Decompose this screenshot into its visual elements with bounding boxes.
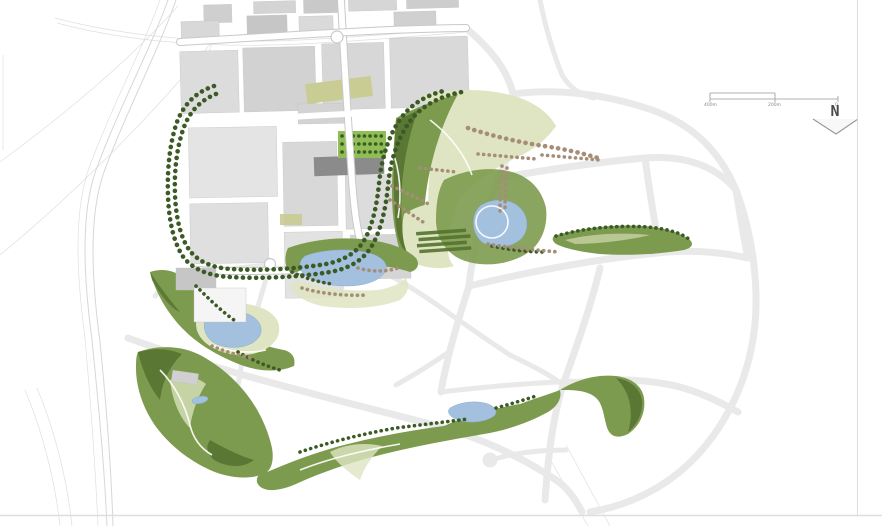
north-arrow: N — [813, 102, 858, 134]
band-pond — [448, 402, 496, 422]
white-building — [194, 288, 246, 322]
cul-de-sac-bulb — [483, 453, 498, 468]
campus-building — [188, 126, 277, 198]
east-green-strip — [553, 225, 692, 254]
masterplan-map: 400m 200m 0 N — [0, 0, 882, 526]
roundabout — [331, 31, 343, 43]
scale-label-mid: 200m — [768, 102, 781, 108]
north-chevron-icon — [813, 119, 858, 134]
highway-curve — [0, 6, 178, 162]
rail-line — [78, 0, 160, 526]
campus-building — [190, 203, 269, 264]
rail-line — [25, 390, 60, 526]
rail-line — [37, 388, 72, 526]
road-segment — [513, 92, 736, 190]
scale-bar: 400m 200m 0 — [704, 93, 838, 108]
allee-row — [500, 166, 502, 212]
street — [186, 112, 392, 124]
masterplan-sheet: 400m 200m 0 N — [0, 0, 882, 526]
olive-parcel-small — [280, 214, 302, 225]
road-segment — [441, 286, 469, 392]
road-segment — [499, 158, 736, 190]
city-block — [253, 1, 295, 14]
city-block — [303, 0, 341, 13]
city-block — [348, 0, 396, 11]
scale-label-left: 400m — [704, 102, 717, 108]
city-block — [204, 4, 232, 23]
city-block — [406, 0, 458, 9]
road-segment — [540, 0, 594, 98]
north-label: N — [830, 102, 839, 120]
green-band — [257, 390, 561, 490]
city-block — [243, 46, 317, 112]
scale-bracket — [710, 93, 775, 96]
campus-building — [283, 141, 338, 226]
